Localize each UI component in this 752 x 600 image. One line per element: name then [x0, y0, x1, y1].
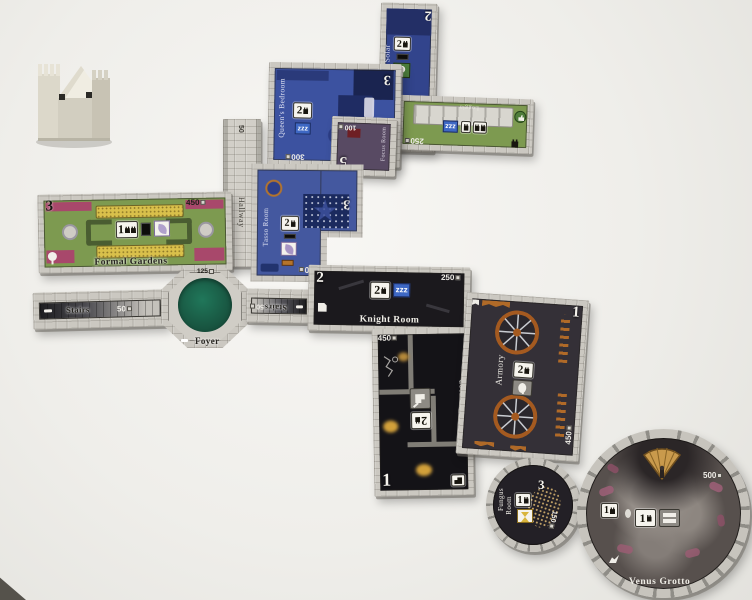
foyer-name: Foyer — [195, 336, 220, 346]
coin-icon — [127, 306, 132, 311]
tile-fungus-room[interactable]: Fungus Room 3 1 150 — [486, 458, 580, 552]
tasso-corner-number: 3 — [343, 196, 350, 210]
queens-corner-number: 3 — [384, 72, 391, 86]
stairs-down-icon — [44, 309, 52, 312]
coin-icon — [250, 303, 255, 308]
knight-name: Knight Room — [360, 314, 420, 325]
armory-mirror-icon — [512, 379, 533, 396]
solar-black-bar-icon — [396, 54, 408, 60]
loggia-zzz-icon: zzz — [443, 120, 458, 133]
coin-icon — [392, 335, 397, 340]
castle-figure-icon — [403, 40, 408, 47]
tile-foyer[interactable]: 125 Foyer — [161, 265, 249, 348]
queens-price: 300 — [285, 152, 305, 161]
hallway-name: Hallway — [237, 197, 246, 228]
equals-bar — [663, 513, 676, 517]
loggia-price: 250 — [404, 136, 424, 146]
fungus-corner-number: 3 — [538, 478, 545, 491]
castle-figure-icon — [131, 226, 136, 233]
armory-weapon-rosette-bottom — [491, 392, 540, 441]
castle-figure-icon — [647, 515, 652, 522]
stairs-east-price: 50 — [250, 302, 264, 309]
fungus-name-line2: Room — [505, 496, 513, 515]
coin-icon — [299, 267, 304, 272]
coin-icon — [404, 138, 409, 143]
gardens-leaf-icon — [154, 220, 170, 236]
focus-price: 100 — [339, 123, 357, 131]
hourglass-glyph — [521, 517, 529, 522]
knight-zzz-icon: zzz — [393, 283, 410, 297]
castle-figure-icon — [480, 124, 485, 131]
armory-weapon-rosette-top — [493, 308, 542, 357]
dungeon-price: 450 — [378, 333, 398, 342]
knight-corner-number: 2 — [316, 271, 324, 286]
gardens-price: 450 — [186, 198, 206, 207]
tree-icon — [46, 251, 58, 265]
castle-miniature-graphic — [28, 54, 120, 150]
grotto-name: Venus Grotto — [629, 577, 690, 587]
tasso-name: Tasso Room — [262, 208, 270, 247]
fungus-name-line1: Fungus — [497, 488, 505, 511]
tasso-door-number: 2 — [284, 218, 289, 229]
knight-door-bonus-icon: 2 — [370, 282, 390, 299]
queens-door-number: 2 — [297, 104, 303, 116]
tasso-door-bonus-icon: 2 — [281, 216, 299, 231]
castle-figure-icon — [303, 107, 308, 114]
dungeon-corner-number: 1 — [382, 471, 391, 489]
tile-stairs-east[interactable]: Stairs 50 — [246, 288, 313, 323]
skeleton-drawing — [381, 354, 403, 380]
coin-icon — [566, 425, 571, 430]
table-photo: 2 2 Solar 300 Loggia zzz 250 3 Queen's B… — [0, 0, 752, 600]
stairs-west-steps — [39, 299, 161, 319]
queens-name: Queen's Bedroom — [277, 78, 287, 138]
knight-door-number: 2 — [374, 283, 380, 298]
queens-bed-pillow — [364, 98, 374, 118]
coin-icon — [339, 124, 344, 129]
solar-corner-number: 2 — [424, 7, 431, 21]
castle-figure-icon — [125, 226, 130, 233]
grotto-price: 500 — [703, 471, 722, 480]
thumb-glyph — [518, 115, 524, 121]
tile-armory[interactable]: 1 Armory 2 450 — [455, 292, 589, 462]
zzz-text: zzz — [445, 123, 456, 130]
gardens-name: Formal Gardens — [94, 256, 167, 267]
gardens-black-bar-icon — [141, 223, 151, 236]
castle-miniature[interactable] — [28, 54, 120, 150]
grotto-entry-door-icon: 1 — [601, 503, 618, 518]
tasso-leaf-icon — [281, 242, 297, 256]
castle-figure-icon — [524, 367, 529, 374]
foyer-price: 125 — [197, 268, 214, 275]
stairs-down-icon — [296, 305, 303, 308]
queens-door-bonus-icon: 2 — [293, 102, 312, 118]
foyer-green-circle — [178, 278, 232, 332]
castle-figure-icon — [463, 123, 468, 130]
castle-figure-icon — [610, 507, 615, 514]
tile-knight-room[interactable]: 2 250 2 zzz Knight Room — [307, 265, 470, 334]
castle-figure-icon — [524, 497, 529, 504]
solar-door-bonus-icon: 2 — [394, 37, 411, 51]
zzz-text: zzz — [297, 125, 308, 132]
tile-formal-gardens[interactable]: 3 450 1 Formal Gardens — [37, 191, 232, 273]
castle-figure-icon — [290, 220, 295, 227]
tasso-black-bar-icon — [284, 234, 296, 239]
coin-icon — [455, 275, 460, 280]
grotto-door-number: 1 — [604, 505, 609, 516]
venus-shell-icon — [639, 443, 685, 481]
castle-figure-icon — [415, 417, 420, 424]
gardens-door-number: 1 — [118, 222, 124, 237]
star-motif — [313, 199, 337, 223]
dungeon-exit-icon — [451, 474, 465, 486]
solar-door-number: 2 — [397, 38, 402, 49]
tasso-sofa — [261, 264, 279, 272]
grotto-bonus-door-number: 1 — [640, 511, 646, 526]
mirror-handle — [522, 391, 524, 394]
tasso-bench — [282, 260, 294, 266]
stairs-east-name: Stairs — [264, 303, 287, 312]
gardens-flowerbed-top — [96, 204, 184, 219]
fungus-hourglass-icon — [517, 509, 533, 523]
arrow-glyph — [413, 402, 419, 407]
zzz-text: zzz — [396, 286, 408, 294]
dungeon-door-number: 2 — [421, 413, 427, 428]
leaf-glyph — [284, 244, 294, 254]
queens-zzz-icon: zzz — [295, 122, 311, 134]
loggia-name: Loggia — [460, 104, 480, 111]
gardens-hedge-left — [86, 219, 112, 245]
stairs-west-price: 50 — [117, 304, 132, 313]
fungus-door-bonus-icon: 1 — [515, 493, 531, 507]
stairs-west-name: Stairs — [66, 304, 90, 315]
coin-icon — [200, 200, 205, 205]
armory-door-number: 2 — [517, 364, 523, 376]
tile-venus-grotto[interactable]: 1 1 500 Venus Grotto — [577, 429, 750, 598]
gardens-door-bonus-icon: 1 — [116, 221, 138, 238]
dungeon-draw-tile-icon — [410, 388, 431, 409]
castle-figure-icon — [381, 287, 386, 294]
fungus-door-number: 1 — [518, 495, 523, 506]
coin-icon — [285, 154, 290, 159]
tile-loggia[interactable]: Loggia zzz 250 — [396, 95, 534, 155]
equals-bar — [663, 519, 676, 523]
loggia-door-icon-1 — [461, 121, 471, 133]
grotto-equals-icon — [659, 509, 680, 527]
coin-icon — [717, 473, 722, 478]
coin-icon — [209, 269, 214, 274]
armory-corner-number: 1 — [572, 305, 581, 320]
castle-figure-icon — [474, 124, 479, 131]
arrow-glyph — [454, 477, 462, 484]
foyer-dash-icon — [181, 339, 188, 342]
tasso-round-table — [265, 180, 282, 197]
solar-name: Solar — [382, 44, 391, 62]
focus-name: Focus Room — [381, 127, 388, 162]
dungeon-door-bonus-icon: 2 — [411, 412, 431, 429]
hallway-price: 50 — [237, 125, 244, 133]
gardens-corner-number: 3 — [45, 199, 53, 214]
tile-stairs-west[interactable]: Stairs 50 — [33, 289, 168, 329]
grotto-pebble — [625, 509, 631, 518]
stairs-east-inner: Stairs 50 — [246, 288, 313, 323]
grotto-bonus-door-icon: 1 — [635, 509, 656, 527]
armory-price: 450 — [563, 425, 573, 445]
table-edge-shadow — [0, 572, 26, 600]
leaf-glyph — [157, 224, 167, 234]
knight-price: 250 — [441, 273, 461, 282]
loggia-door-icon-2 — [473, 121, 487, 133]
armory-door-bonus-icon: 2 — [513, 361, 534, 378]
coin-icon — [549, 523, 555, 529]
